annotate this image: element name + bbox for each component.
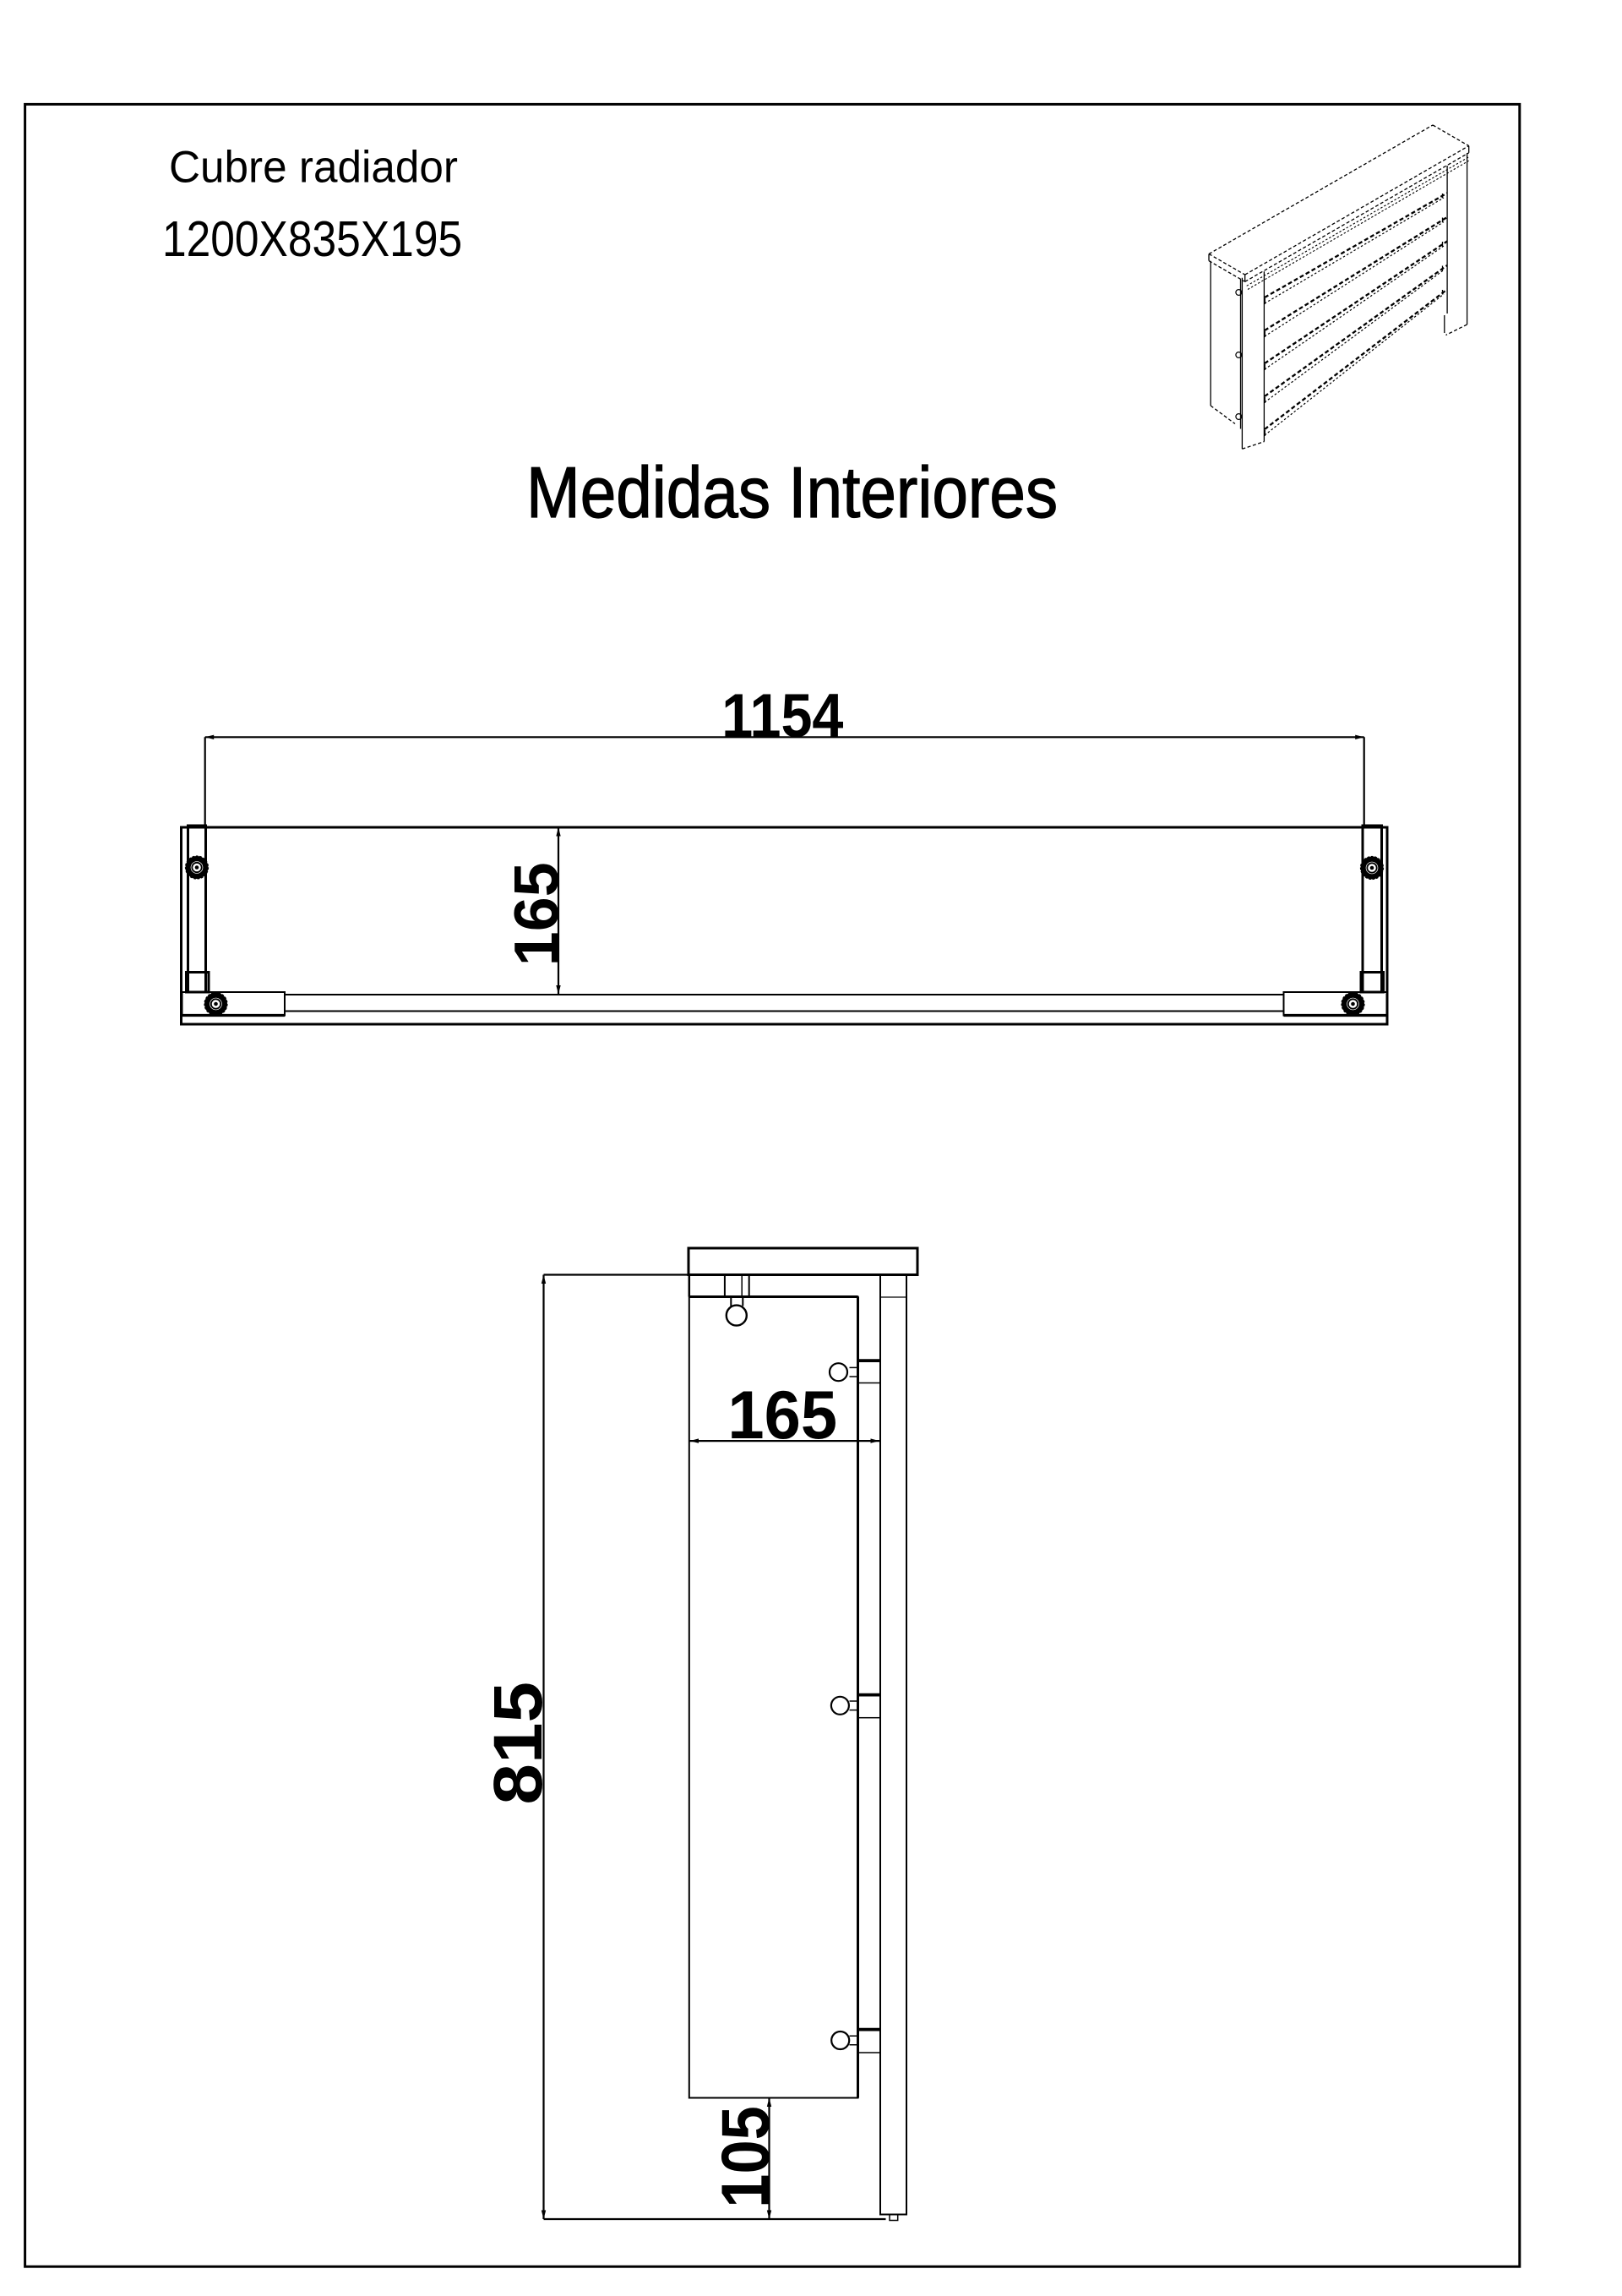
svg-text:Medidas Interiores: Medidas Interiores (526, 453, 1058, 533)
svg-text:105: 105 (708, 2106, 783, 2208)
svg-text:1200X835X195: 1200X835X195 (162, 211, 462, 267)
svg-text:815: 815 (480, 1682, 557, 1805)
svg-text:Cubre radiador: Cubre radiador (169, 143, 458, 193)
svg-text:165: 165 (727, 1377, 837, 1453)
svg-text:1154: 1154 (721, 682, 844, 750)
svg-text:165: 165 (501, 862, 571, 966)
